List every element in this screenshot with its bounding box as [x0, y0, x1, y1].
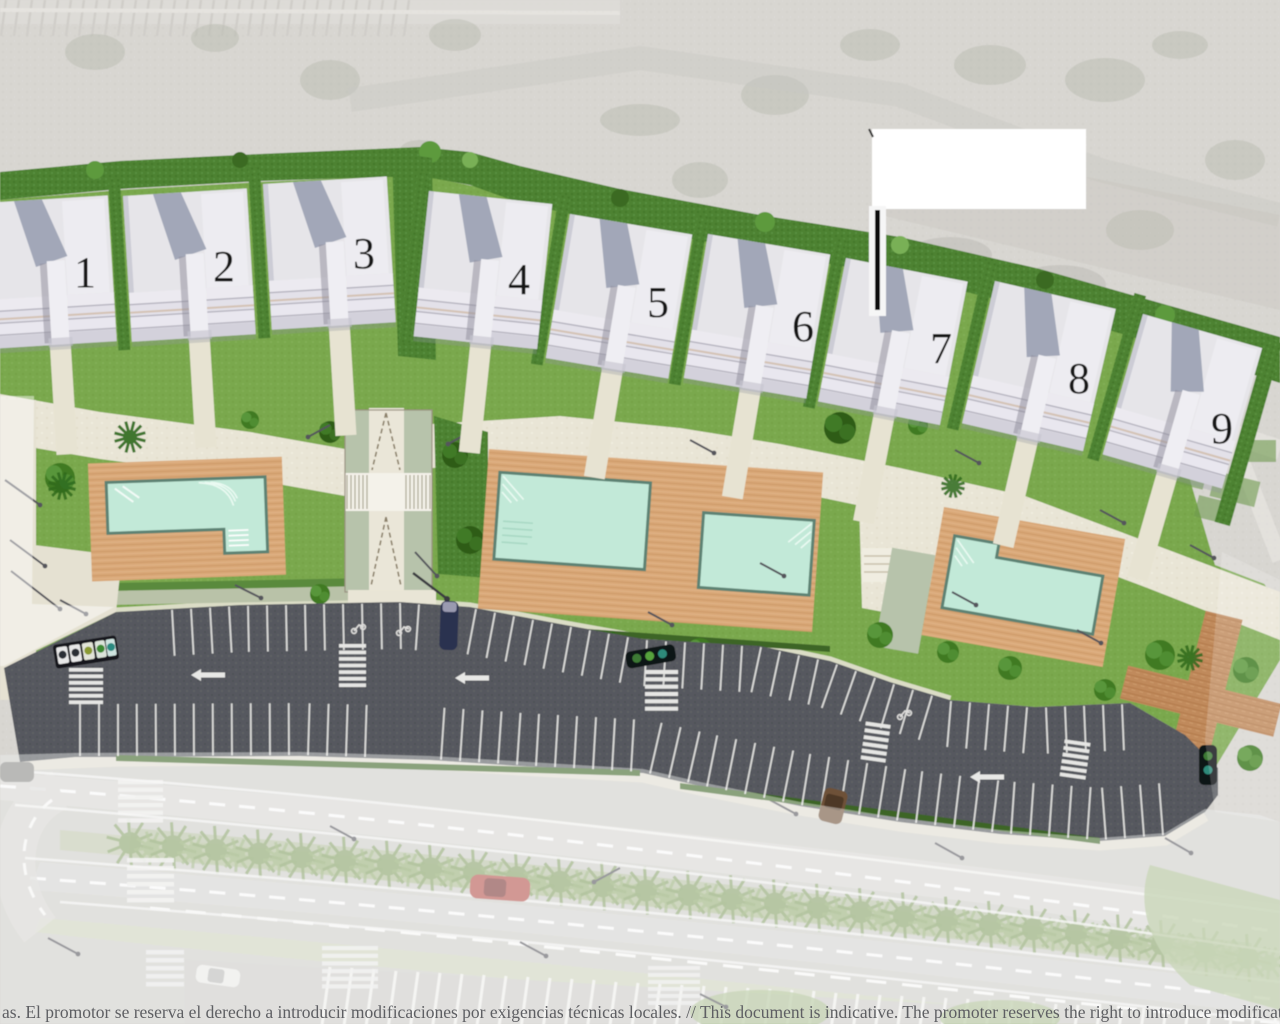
svg-text:4: 4: [508, 255, 530, 304]
svg-text:2: 2: [213, 242, 235, 291]
svg-text:5: 5: [647, 278, 669, 327]
svg-text:8: 8: [1068, 354, 1090, 403]
svg-text:3: 3: [353, 229, 375, 278]
svg-text:1: 1: [74, 248, 96, 297]
svg-text:9: 9: [1211, 404, 1233, 453]
svg-text:7: 7: [930, 324, 952, 373]
svg-text:as. El promotor se reserva el: as. El promotor se reserva el derecho a …: [2, 1002, 1280, 1022]
svg-text:6: 6: [792, 302, 814, 351]
